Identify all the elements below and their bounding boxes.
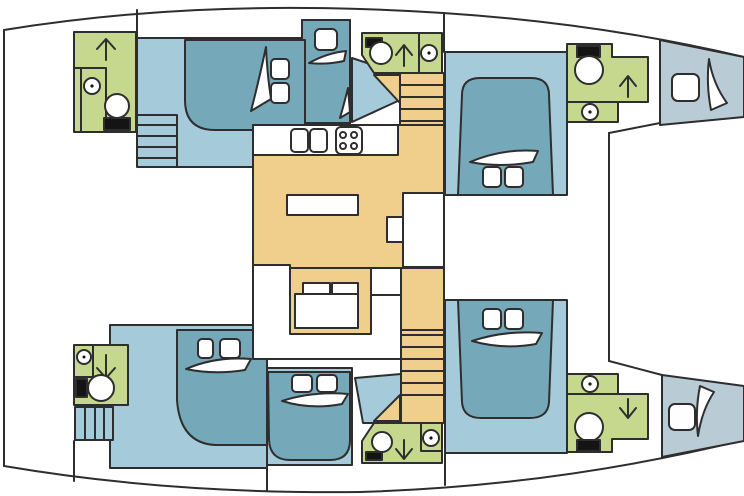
pillow [271,83,289,103]
hatch-icon [669,404,695,430]
galley-sink [291,129,308,152]
pillow [271,59,289,79]
sink-drain-dot [83,356,86,359]
pillow [292,375,312,392]
trampoline-port-edge [609,123,660,133]
deck-plan-svg [0,0,744,496]
stove-top [336,127,362,154]
toilet-tank [577,440,600,451]
aft-starboard-head [74,345,128,405]
toilet-icon [575,413,603,441]
pillow [505,309,523,329]
forward-starboard-head [567,374,648,452]
toilet-icon [370,42,392,64]
pillow [505,167,523,187]
galley-sink [310,129,327,152]
toilet-icon [105,94,129,118]
pillow [483,167,501,187]
aft-starboard-steps [75,407,113,440]
mid-starboard-head [362,423,442,463]
toilet-icon [372,432,392,452]
pillow [317,375,337,392]
sink-drain-dot [90,84,93,87]
salon-east-walkway [401,268,444,423]
pillow [220,339,240,358]
stove-icon [336,127,362,154]
toilet-tank [76,379,87,397]
port-bow-locker [660,40,744,125]
toilet-icon [575,56,603,84]
trampoline-starboard-edge [609,361,662,375]
chart-desk [403,193,444,267]
aft-port-head [74,32,136,132]
settee-cushion [332,283,358,294]
forward-port-head [567,44,648,122]
toilet-icon [88,375,114,401]
hatch-icon [672,74,699,101]
mid-port-head [362,33,442,73]
starboard-bow-locker [662,375,744,457]
deck-plan-image [0,0,744,496]
pillow [483,309,501,329]
sink-drain-dot [427,51,430,54]
sink-drain-dot [429,436,432,439]
settee-table [295,294,358,328]
hatch-icon [315,29,337,50]
pillow [198,339,213,358]
settee-cushion [303,283,330,294]
toilet-tank [366,452,382,460]
chart-desk-stool [387,217,403,242]
plan-root [4,8,744,492]
sink-drain-dot [588,382,591,385]
sink-drain-dot [588,110,591,113]
toilet-tank [104,118,130,130]
island-counter [287,195,358,215]
galley-counter [253,125,398,155]
trampoline-lines [609,123,662,375]
